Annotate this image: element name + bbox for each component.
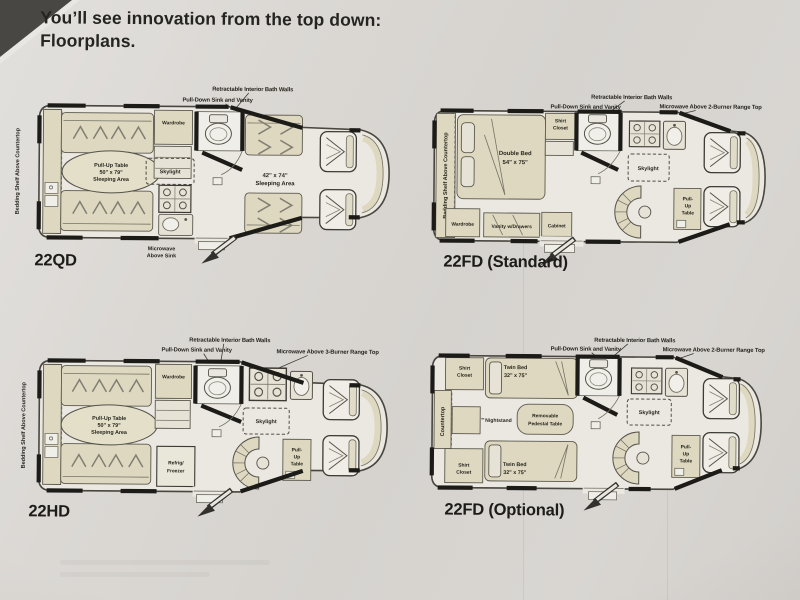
pull-up-table-area: Pull-Up Table 50" x 79" Sleeping Area bbox=[62, 151, 160, 194]
kitchen-sink bbox=[159, 214, 193, 235]
plan-name-22fd-optional: 22FD (Optional) bbox=[444, 501, 564, 521]
brochure-page-photo: You’ll see innovation from the top down:… bbox=[0, 0, 800, 600]
plan-name-22fd-standard: 22FD (Standard) bbox=[443, 253, 568, 273]
label-twin-bed: Twin Bed bbox=[504, 365, 528, 371]
pull-up-table: Pull- Up Table bbox=[674, 188, 701, 229]
label-wardrobe: Wardrobe bbox=[162, 374, 185, 380]
vanity: Vanity w/Drawers bbox=[484, 213, 540, 237]
label-twin-bed: Twin Bed bbox=[503, 462, 527, 468]
page-title-line2: Floorplans. bbox=[40, 30, 136, 51]
wardrobe-cabinet: Wardrobe bbox=[155, 364, 192, 428]
plan-name-22hd: 22HD bbox=[28, 502, 70, 521]
label-pullup-1: Pull- bbox=[292, 447, 303, 453]
brochure-sheet: You’ll see innovation from the top down:… bbox=[0, 0, 800, 600]
side-label-bedding-shelf: Bedding Shelf Above Countertop bbox=[21, 381, 28, 468]
callout-bath-walls: Retractable Interior Bath Walls bbox=[591, 95, 672, 102]
label-refrig-1: Refrig/ bbox=[168, 460, 184, 466]
page-title: You’ll see innovation from the top down:… bbox=[40, 6, 381, 55]
label-sleeping-size: 42" x 74" bbox=[262, 173, 287, 179]
side-label-bedding-shelf: Bedding Shelf Above Countertop bbox=[443, 132, 450, 219]
rear-counter bbox=[43, 364, 62, 484]
cab-seat-passenger bbox=[320, 190, 356, 230]
label-pullup-3: Table bbox=[680, 458, 693, 464]
label-bed-size: 32" x 75" bbox=[504, 373, 528, 379]
label-sleeping-area: Sleeping Area bbox=[91, 430, 128, 436]
callout-bath-walls: Retractable Interior Bath Walls bbox=[189, 338, 270, 345]
label-pullup-2: Up bbox=[683, 451, 690, 457]
toilet-icon bbox=[204, 369, 230, 399]
callout-microwave: Microwave Above 2-Burner Range Top bbox=[663, 347, 766, 354]
label-microwave-1: Microwave bbox=[148, 246, 176, 252]
label-bed-size: 32" x 75" bbox=[503, 470, 527, 476]
label-pullup-1: Pull- bbox=[683, 196, 694, 202]
label-shirt: Shirt bbox=[458, 463, 470, 469]
wardrobe: Wardrobe bbox=[446, 209, 480, 237]
toilet-icon bbox=[205, 115, 231, 145]
double-bed: Double Bed 54" x 75" bbox=[457, 115, 546, 200]
label-pull-up-table: Pull-Up Table bbox=[94, 163, 128, 169]
label-skylight: Skylight bbox=[160, 169, 181, 175]
stove-icon bbox=[159, 185, 191, 212]
label-skylight: Skylight bbox=[256, 419, 277, 425]
label-skylight: Skylight bbox=[639, 410, 660, 416]
sink-icon bbox=[665, 368, 687, 396]
label-bed-size: 54" x 75" bbox=[503, 160, 528, 166]
cab-seat-driver bbox=[704, 133, 740, 173]
label-microwave-2: Above Sink bbox=[147, 253, 176, 259]
cabinet: Cabinet bbox=[542, 212, 572, 236]
cab-seat-driver bbox=[320, 132, 356, 172]
label-pullup-3: Table bbox=[682, 210, 695, 216]
side-label-bedding-shelf: Bedding Shelf Above Countertop bbox=[15, 127, 22, 214]
toilet-icon bbox=[584, 115, 610, 145]
pull-up-table: Pull- Up Table bbox=[672, 435, 700, 477]
label-shirt: Shirt bbox=[459, 366, 471, 372]
label-skylight: Skylight bbox=[638, 166, 659, 172]
label-wardrobe: Wardrobe bbox=[451, 222, 474, 228]
shirt-closet-top: Shirt Closet bbox=[445, 358, 483, 390]
page-title-line1: You’ll see innovation from the top down: bbox=[40, 7, 381, 30]
pull-up-table-area: Pull-Up Table 50" x 79" Sleeping Area bbox=[61, 405, 157, 446]
side-label-countertop: Countertop bbox=[440, 406, 446, 436]
label-sleeping-area2: Sleeping Area bbox=[255, 181, 295, 187]
sofa-bench-bottom bbox=[61, 444, 151, 485]
label-pullup-3: Table bbox=[291, 461, 304, 467]
callout-sink-vanity: Pull-Down Sink and Vanity bbox=[183, 97, 254, 104]
label-double-bed: Double Bed bbox=[499, 151, 532, 157]
sink-icon bbox=[663, 121, 685, 149]
callout-microwave: Microwave Above 2-Burner Range Top bbox=[659, 104, 762, 111]
sofa-bench-top bbox=[61, 113, 153, 154]
shirt-closet-bottom: Shirt Closet bbox=[445, 449, 483, 483]
label-pedestal-1: Removable bbox=[532, 413, 558, 419]
stove-icon bbox=[629, 121, 660, 147]
label-pedestal-2: Pedestal Table bbox=[528, 421, 562, 427]
label-nightstand: Nightstand bbox=[485, 418, 512, 424]
label-pullup-2: Up bbox=[685, 203, 692, 209]
label-pullup-2: Up bbox=[294, 454, 301, 460]
plan-name-22qd: 22QD bbox=[34, 251, 76, 270]
label-pullup-1: Pull- bbox=[681, 444, 692, 450]
cab-seat-driver bbox=[703, 379, 739, 419]
shirt-closet: Shirt Closet bbox=[545, 113, 575, 155]
callout-bath-walls: Retractable Interior Bath Walls bbox=[594, 338, 675, 345]
stove-icon bbox=[631, 368, 662, 394]
twin-bed-top: Twin Bed 32" x 75" bbox=[485, 358, 577, 399]
callout-bath-walls: Retractable Interior Bath Walls bbox=[212, 87, 293, 94]
label-vanity: Vanity w/Drawers bbox=[492, 224, 533, 230]
callout-sink-vanity: Pull-Down Sink and Vanity bbox=[551, 346, 622, 353]
label-pull-up-table: Pull-Up Table bbox=[92, 416, 126, 422]
refrigerator: Refrig/ Freezer bbox=[157, 446, 195, 486]
sink-icon bbox=[290, 371, 312, 399]
label-refrig-2: Freezer bbox=[167, 468, 185, 474]
toilet-icon bbox=[585, 360, 611, 390]
label-closet: Closet bbox=[553, 125, 568, 131]
label-table-size: 50" x 79" bbox=[100, 170, 124, 176]
label-closet: Closet bbox=[456, 470, 471, 476]
label-sleeping-area: Sleeping Area bbox=[93, 177, 130, 183]
callout-microwave: Microwave Above 3-Burner Range Top bbox=[277, 349, 380, 356]
label-wardrobe: Wardrobe bbox=[162, 120, 185, 126]
sofa-bench-bottom bbox=[61, 190, 153, 231]
rear-counter bbox=[43, 109, 62, 233]
pedestal-table: Removable Pedestal Table bbox=[517, 404, 573, 434]
label-cabinet: Cabinet bbox=[548, 223, 566, 229]
sofa-bench-top bbox=[61, 366, 151, 407]
label-closet: Closet bbox=[457, 373, 472, 379]
twin-bed-bottom: Twin Bed 32" x 75" bbox=[485, 441, 577, 482]
label-shirt: Shirt bbox=[555, 118, 567, 124]
cab-seat-passenger bbox=[704, 187, 740, 227]
label-table-size: 50" x 79" bbox=[98, 423, 122, 429]
